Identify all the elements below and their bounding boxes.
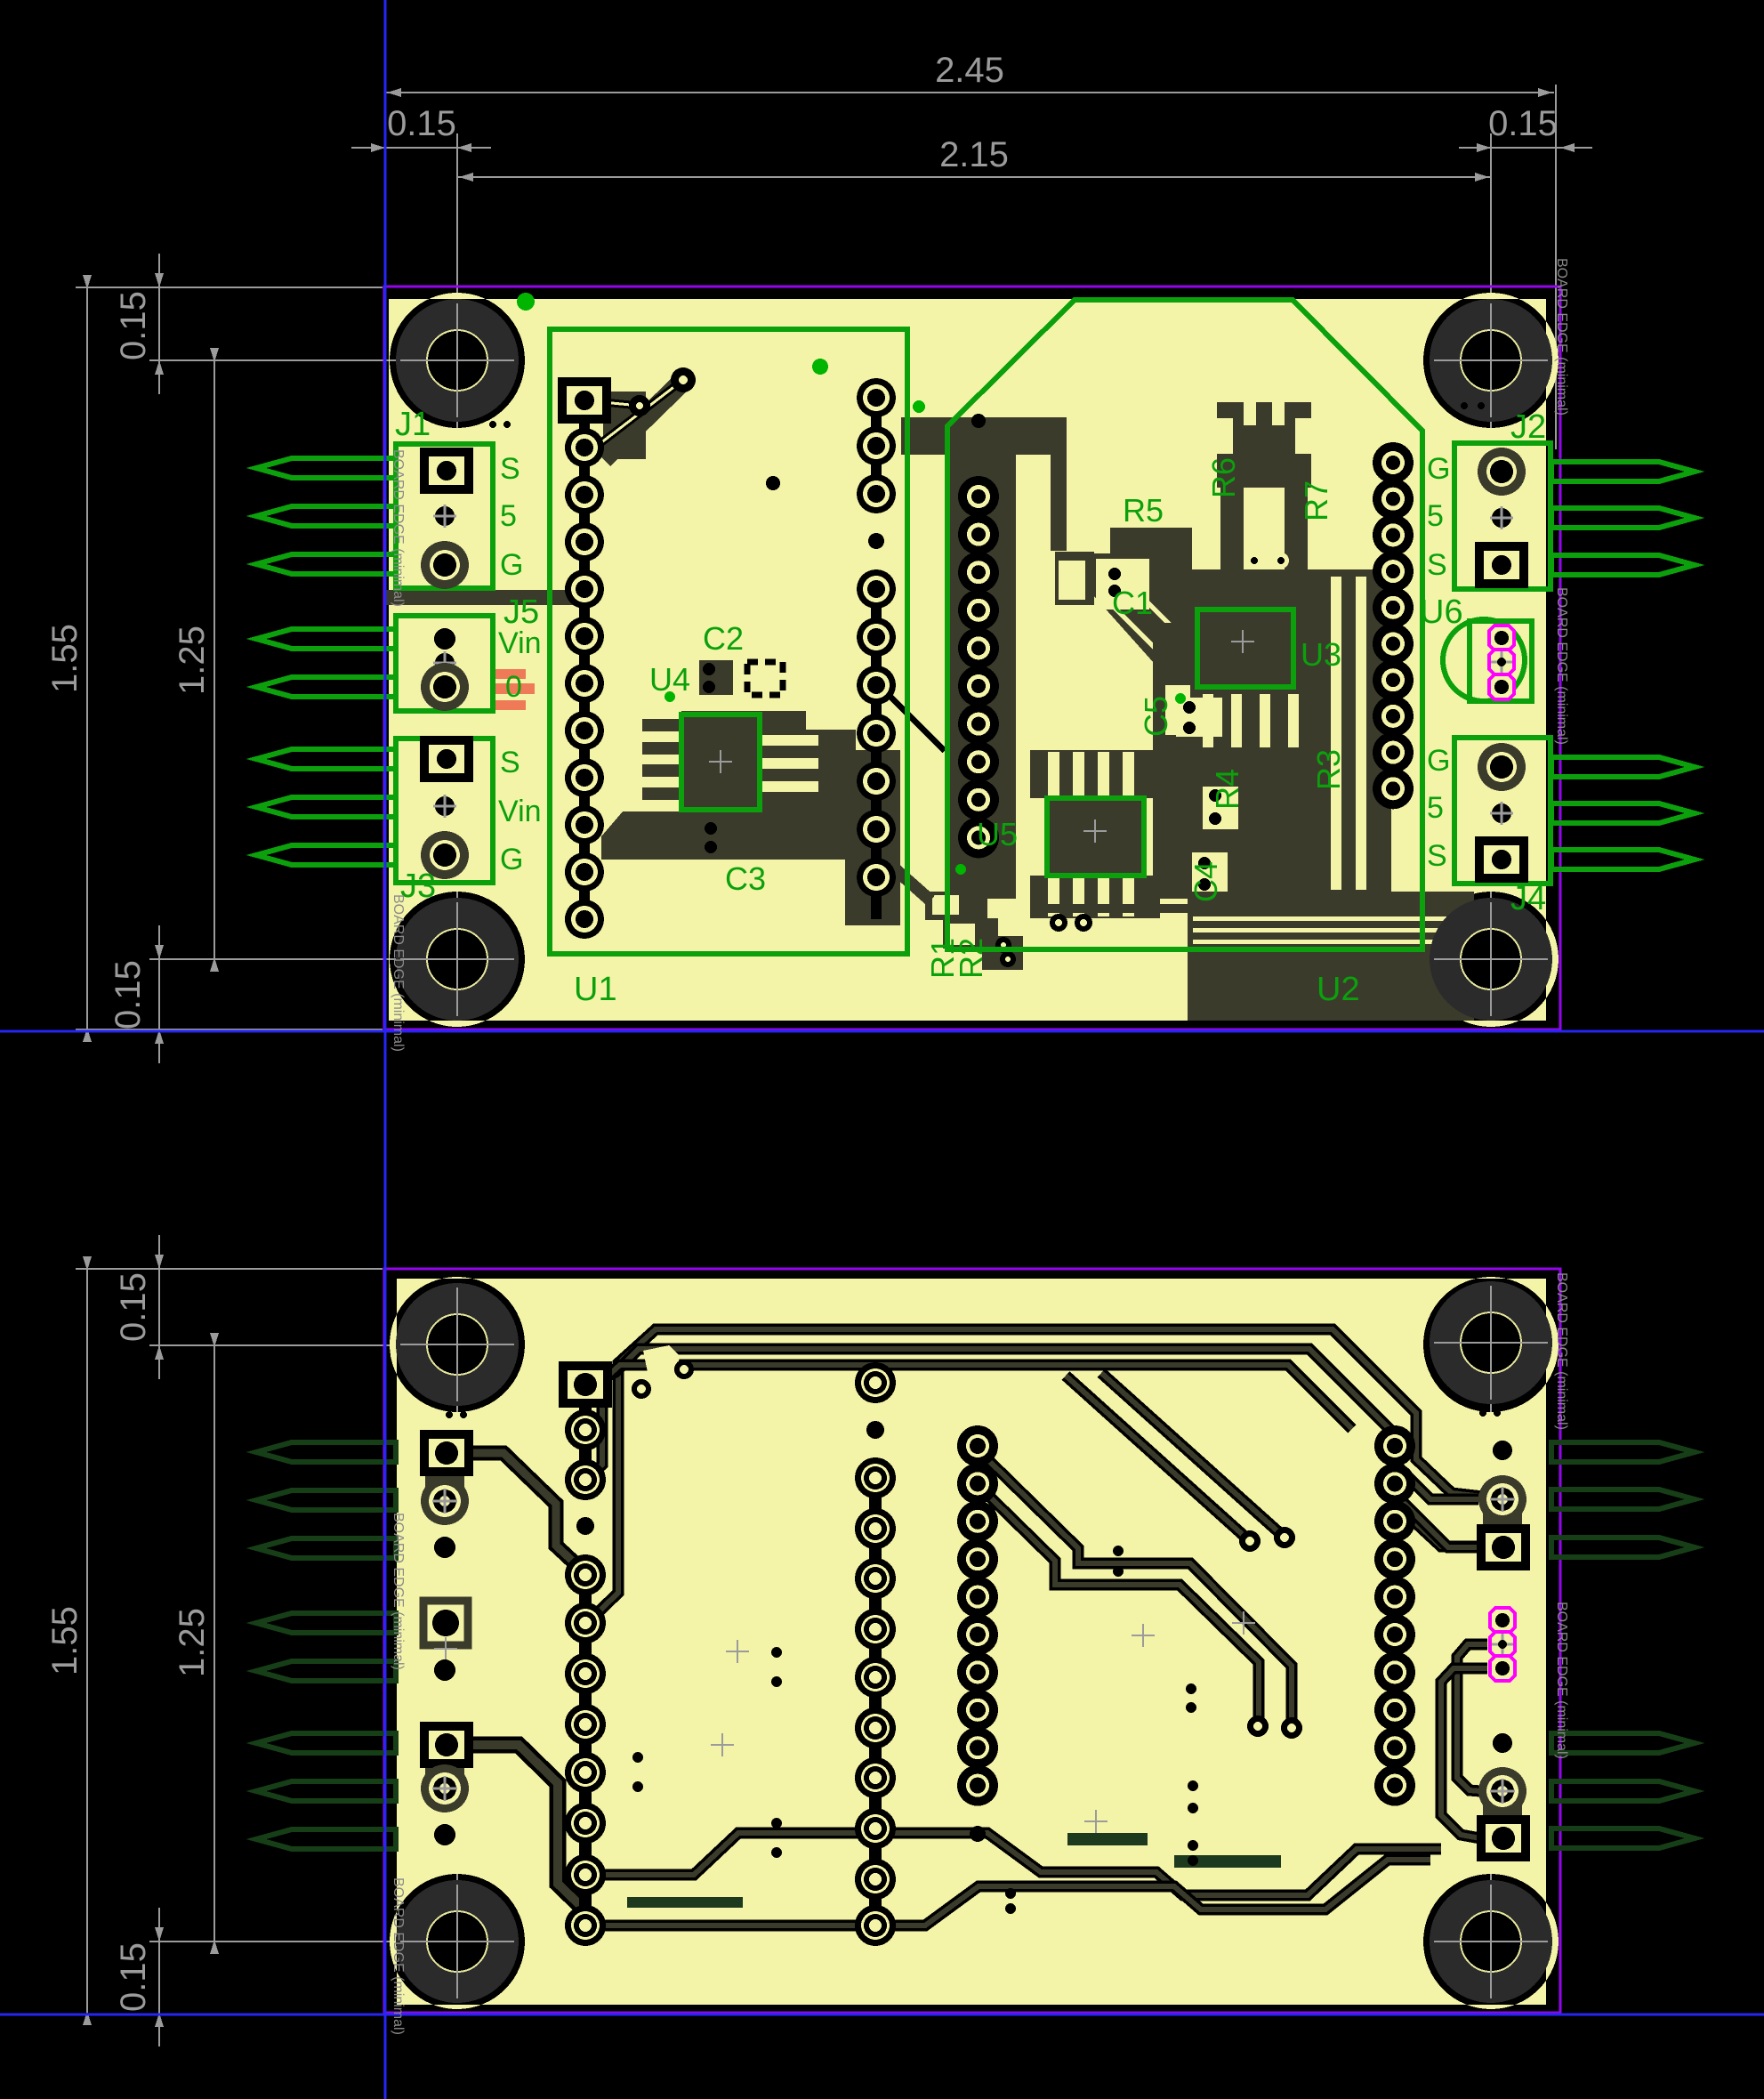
svg-text:0: 0 [505,670,522,704]
svg-text:1.55: 1.55 [45,1606,85,1675]
svg-text:C3: C3 [725,860,766,897]
svg-text:R7: R7 [1298,480,1334,521]
svg-text:0.15: 0.15 [114,291,153,360]
svg-text:1.25: 1.25 [173,626,212,695]
svg-text:BOARD EDGE (minimal): BOARD EDGE (minimal) [1554,1272,1569,1430]
svg-text:G: G [500,843,523,876]
svg-text:0.15: 0.15 [114,1942,153,2012]
svg-text:J2: J2 [1510,408,1546,446]
svg-text:BOARD EDGE (minimal): BOARD EDGE (minimal) [391,894,406,1052]
svg-text:S: S [1427,839,1447,873]
svg-text:BOARD EDGE (minimal): BOARD EDGE (minimal) [1554,1602,1569,1759]
svg-text:C1: C1 [1112,585,1153,621]
svg-text:R5: R5 [1123,492,1164,529]
svg-text:U4: U4 [649,661,690,698]
svg-text:U5: U5 [977,816,1018,852]
svg-text:0.15: 0.15 [109,960,148,1029]
svg-text:5: 5 [1427,791,1444,825]
svg-text:1.25: 1.25 [173,1608,212,1677]
svg-text:U6: U6 [1420,593,1463,631]
svg-text:G: G [1427,452,1450,486]
svg-text:2.45: 2.45 [935,51,1004,90]
svg-text:J4: J4 [1510,880,1546,917]
svg-text:R6: R6 [1205,457,1242,498]
svg-text:5: 5 [1427,499,1444,533]
svg-text:G: G [1427,744,1450,778]
svg-text:S: S [500,746,520,779]
svg-text:5: 5 [500,499,517,533]
svg-text:G: G [500,548,523,582]
svg-text:0.15: 0.15 [387,104,456,143]
svg-text:S: S [500,452,520,486]
svg-text:C5: C5 [1138,696,1174,737]
svg-text:2.15: 2.15 [939,135,1009,174]
svg-text:BOARD EDGE (minimal): BOARD EDGE (minimal) [391,449,406,607]
svg-text:U3: U3 [1301,636,1341,673]
svg-text:U1: U1 [574,971,617,1008]
svg-text:BOARD EDGE (minimal): BOARD EDGE (minimal) [391,1513,406,1670]
svg-text:Vin: Vin [498,795,542,828]
svg-text:J5: J5 [503,593,539,631]
svg-text:R3: R3 [1310,749,1347,790]
svg-text:R2: R2 [953,938,989,979]
svg-text:J1: J1 [395,406,431,443]
svg-text:BOARD EDGE (minimal): BOARD EDGE (minimal) [1554,258,1569,416]
svg-text:1.55: 1.55 [45,624,85,693]
svg-text:Vin: Vin [498,626,542,660]
svg-text:0.15: 0.15 [114,1272,153,1342]
svg-text:C4: C4 [1188,861,1224,902]
svg-text:S: S [1427,548,1447,582]
svg-text:R4: R4 [1209,769,1245,810]
svg-text:BOARD EDGE (minimal): BOARD EDGE (minimal) [391,1877,406,2035]
svg-text:BOARD EDGE (minimal): BOARD EDGE (minimal) [1554,587,1569,745]
svg-text:U2: U2 [1317,971,1360,1008]
svg-text:0.15: 0.15 [1488,104,1558,143]
svg-text:C2: C2 [703,620,744,657]
